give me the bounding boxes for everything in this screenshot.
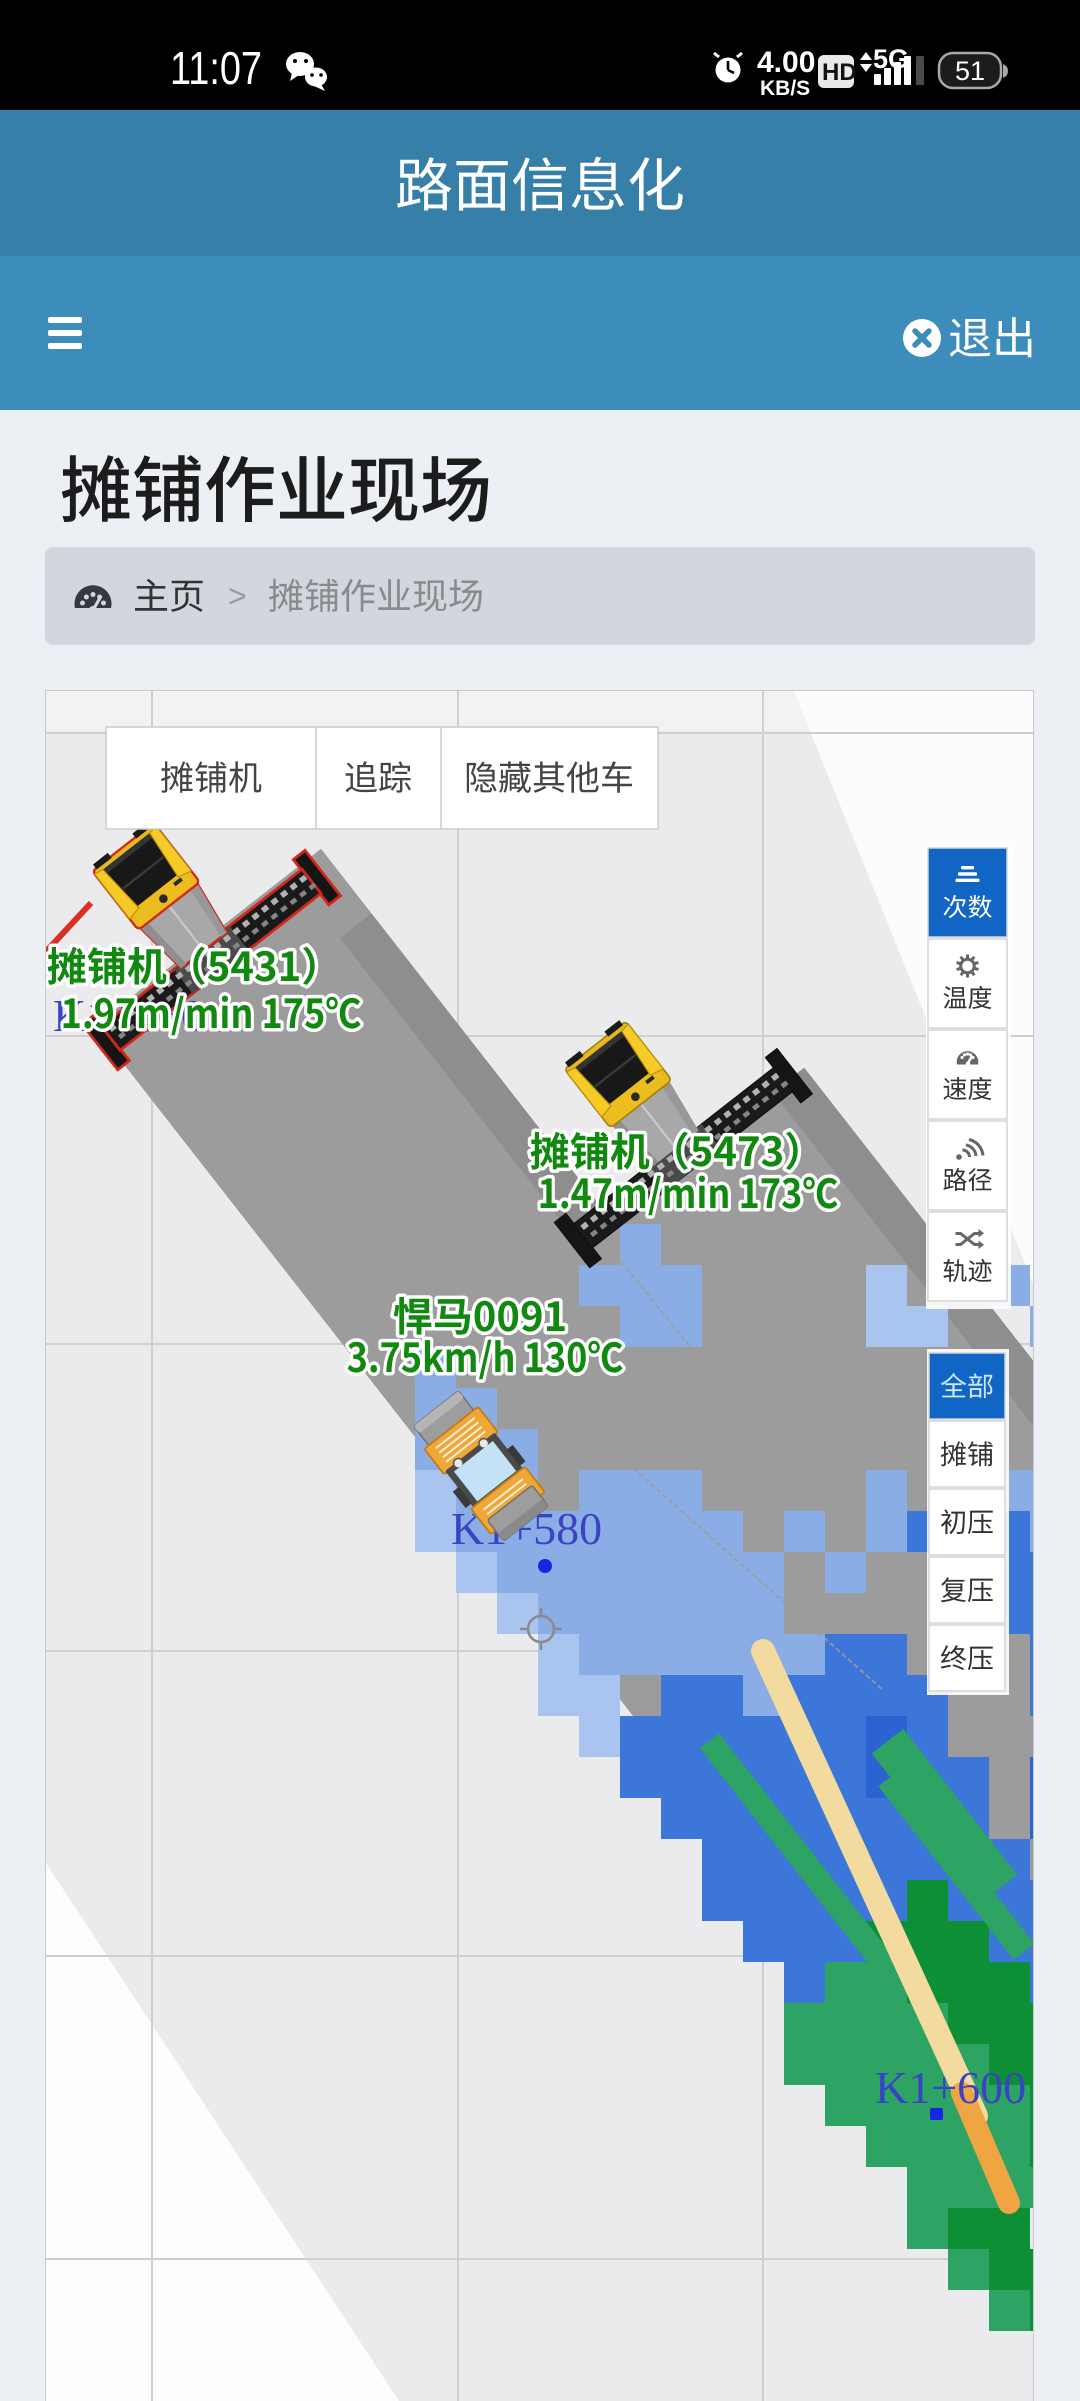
- svg-text:11:07: 11:07: [170, 42, 262, 94]
- svg-text:K1+600: K1+600: [875, 2062, 1026, 2113]
- svg-text:>: >: [228, 578, 247, 614]
- svg-text:4.00: 4.00: [757, 46, 815, 79]
- svg-text:KB/S: KB/S: [760, 77, 810, 100]
- svg-text:51: 51: [955, 56, 985, 86]
- svg-text:HD: HD: [822, 59, 857, 86]
- svg-text:5G: 5G: [873, 44, 909, 74]
